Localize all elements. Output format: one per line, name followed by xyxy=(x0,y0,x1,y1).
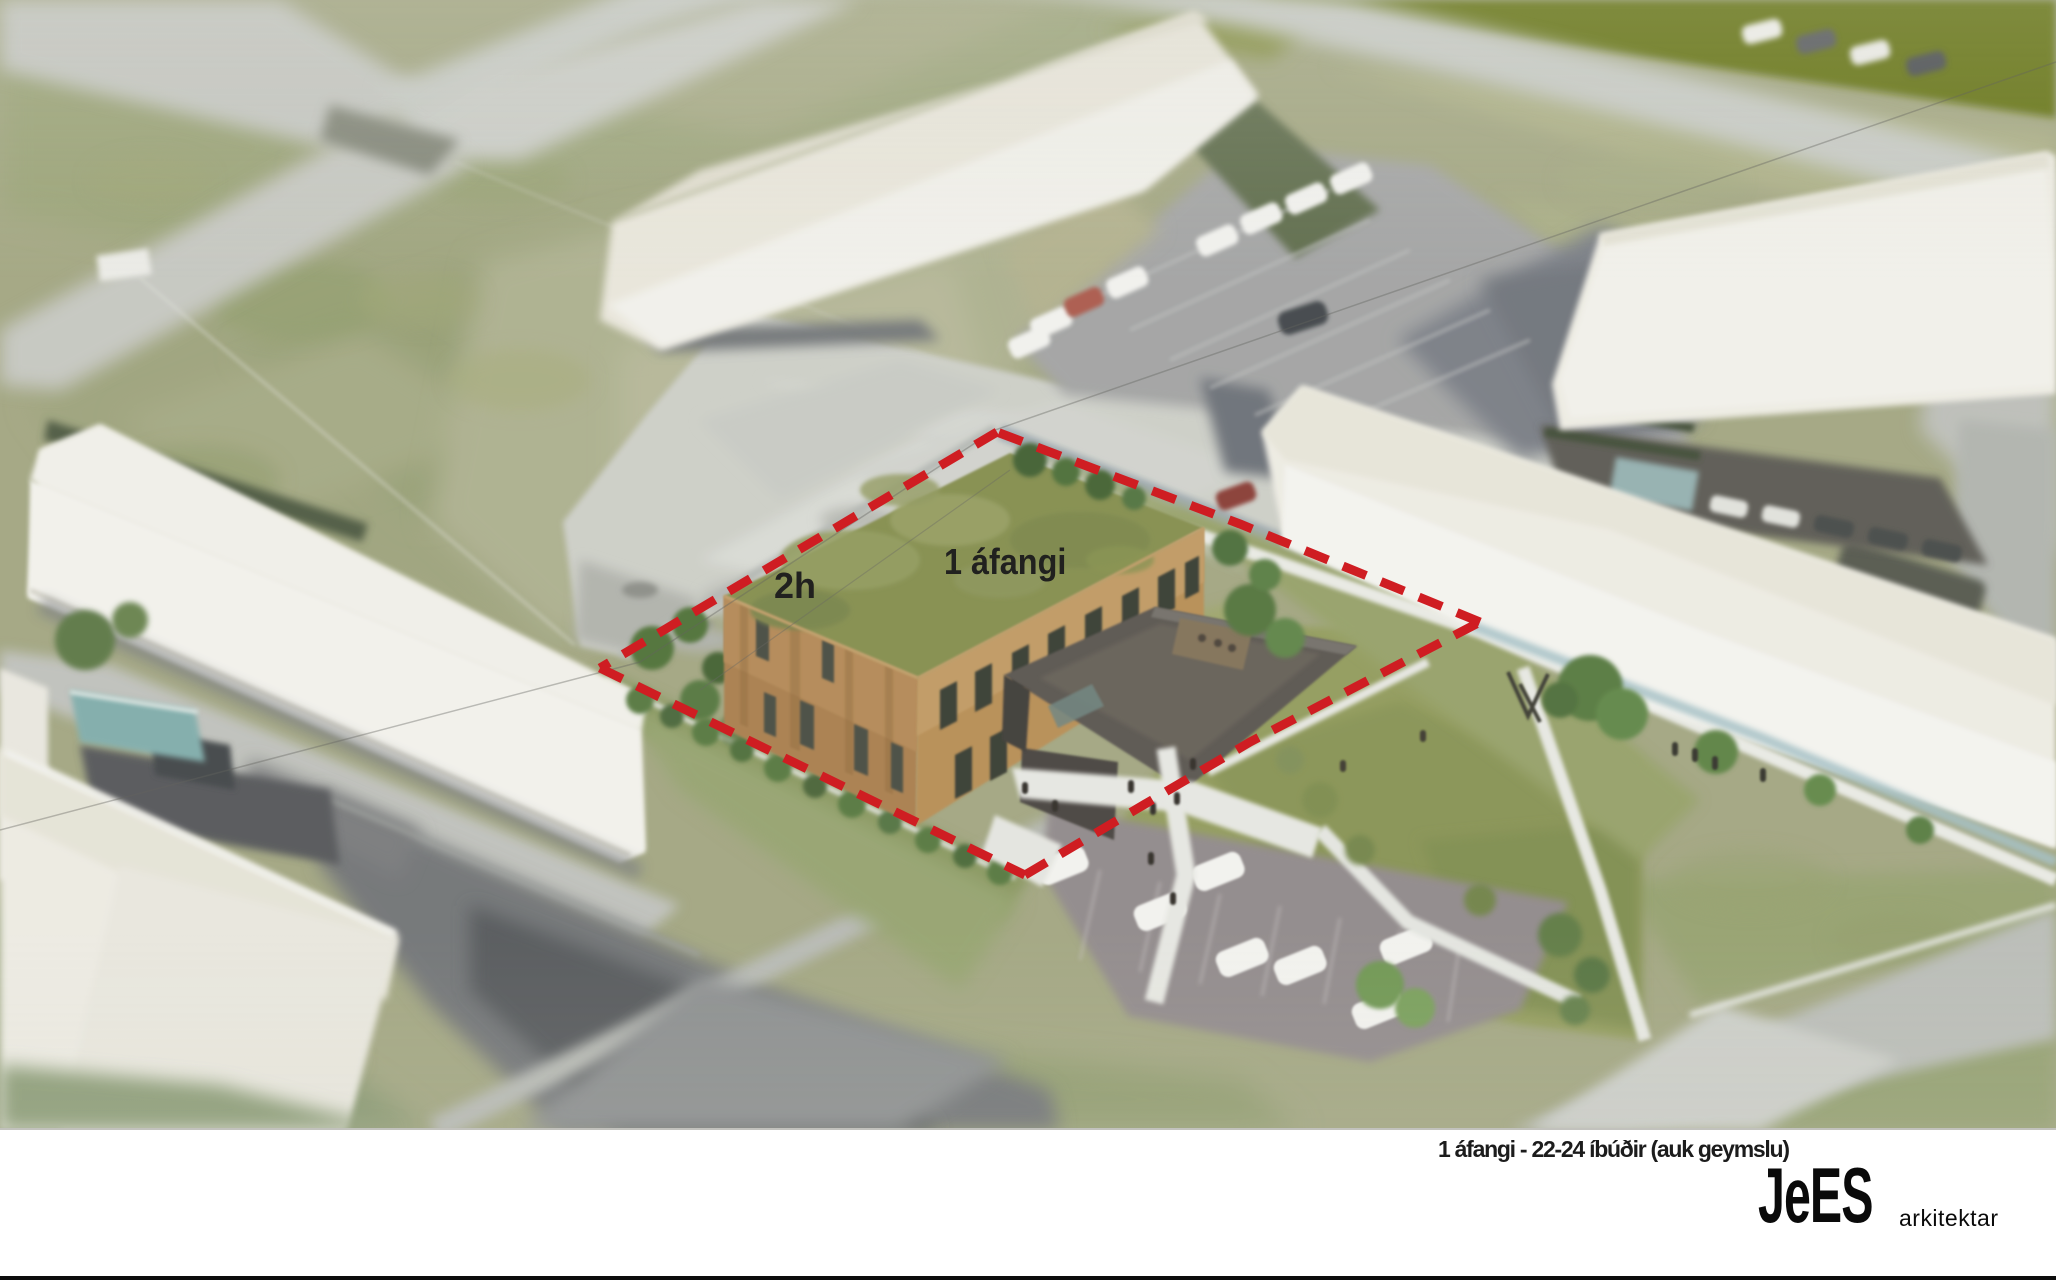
svg-text:JeES: JeES xyxy=(1758,1151,1873,1239)
svg-text:2h: 2h xyxy=(774,565,816,606)
svg-text:arkitektar: arkitektar xyxy=(1899,1205,1998,1231)
svg-text:1 áfangi: 1 áfangi xyxy=(944,542,1066,582)
svg-text:1 áfangi - 22-24 íbúðir (auk g: 1 áfangi - 22-24 íbúðir (auk geymslu) xyxy=(1438,1136,1790,1162)
